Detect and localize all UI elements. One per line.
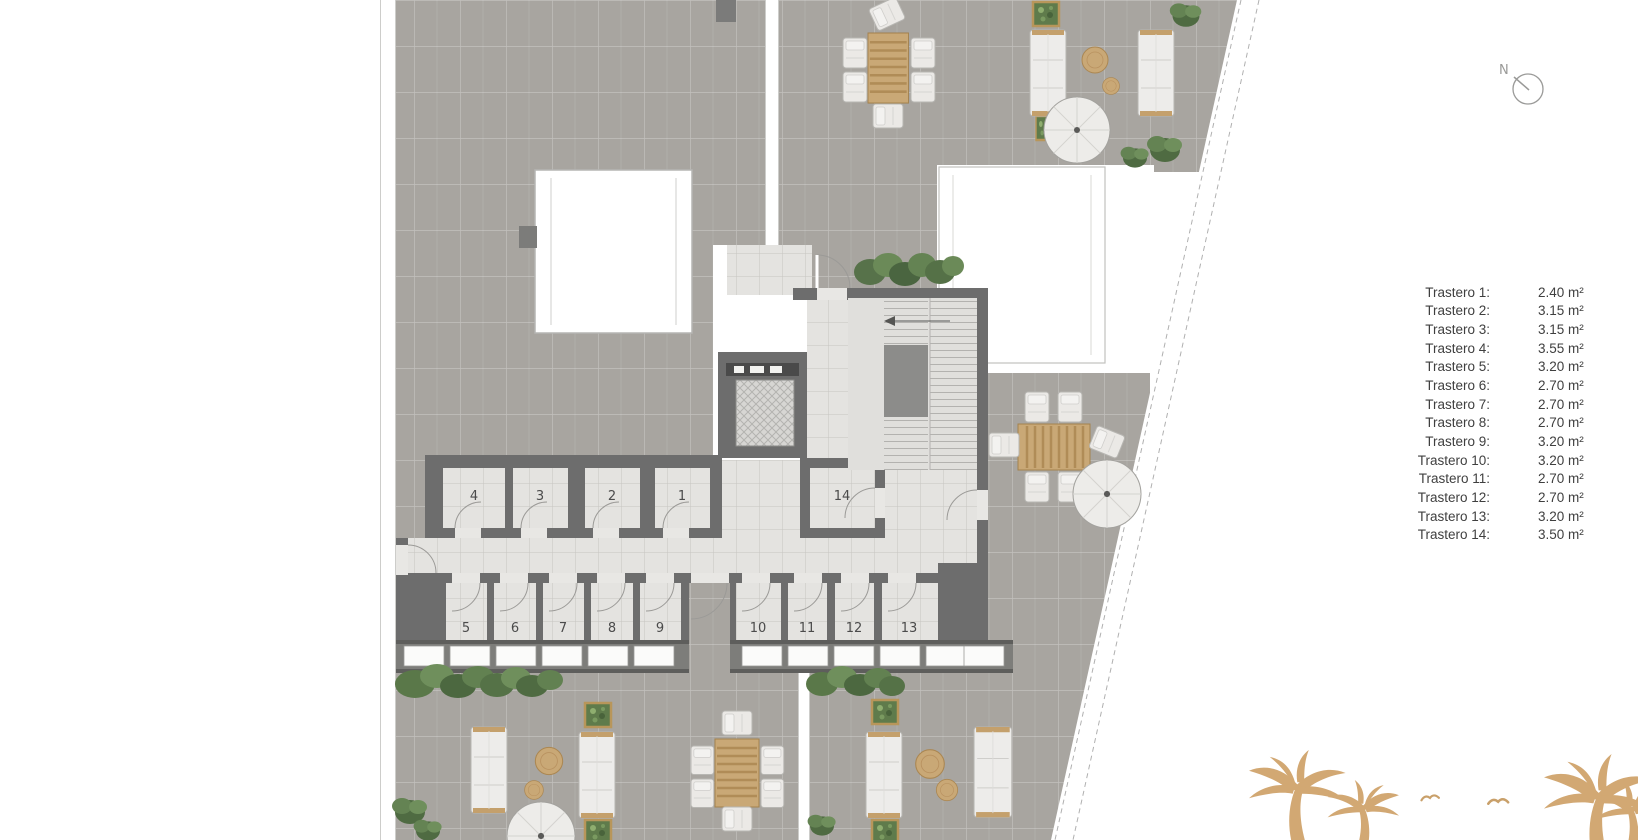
parasol — [1073, 460, 1141, 528]
legend-row: Trastero 13:3.20 m² — [1378, 507, 1584, 526]
legend-row: Trastero 1:2.40 m² — [1378, 283, 1584, 302]
side-table — [1082, 47, 1108, 73]
legend-value: 3.55 m² — [1538, 341, 1584, 356]
legend-value: 2.70 m² — [1538, 471, 1584, 486]
legend-value: 2.40 m² — [1538, 285, 1584, 300]
legend-label: Trastero 5: — [1378, 359, 1490, 374]
legend-value: 2.70 m² — [1538, 378, 1584, 393]
room-label-8: 8 — [608, 621, 616, 636]
legend-row: Trastero 8:2.70 m² — [1378, 413, 1584, 432]
legend-row: Trastero 9:3.20 m² — [1378, 432, 1584, 451]
parasol — [1044, 97, 1110, 163]
south-facade-windows — [396, 640, 1013, 673]
legend-value: 3.15 m² — [1538, 303, 1584, 318]
room-label-10: 10 — [750, 621, 767, 636]
legend-label: Trastero 13: — [1378, 509, 1490, 524]
sun-lounger — [866, 732, 902, 818]
legend-value: 3.20 m² — [1538, 509, 1584, 524]
legend-value: 3.20 m² — [1538, 434, 1584, 449]
legend-row: Trastero 6:2.70 m² — [1378, 376, 1584, 395]
sun-lounger — [1138, 30, 1174, 116]
legend-label: Trastero 9: — [1378, 434, 1490, 449]
legend-row: Trastero 7:2.70 m² — [1378, 395, 1584, 414]
legend-row: Trastero 5:3.20 m² — [1378, 358, 1584, 377]
room-label-9: 9 — [656, 621, 664, 636]
legend-label: Trastero 6: — [1378, 378, 1490, 393]
room-label-7: 7 — [559, 621, 567, 636]
skylight-bracket — [519, 226, 537, 248]
legend-row: Trastero 4:3.55 m² — [1378, 339, 1584, 358]
legend-row: Trastero 11:2.70 m² — [1378, 469, 1584, 488]
room-label-13: 13 — [901, 621, 918, 636]
room-label-2: 2 — [608, 489, 616, 504]
sun-lounger — [471, 727, 507, 813]
stair-landing — [884, 345, 928, 417]
legend-label: Trastero 3: — [1378, 322, 1490, 337]
legend-label: Trastero 8: — [1378, 415, 1490, 430]
legend-label: Trastero 12: — [1378, 490, 1490, 505]
legend-row: Trastero 3:3.15 m² — [1378, 320, 1584, 339]
legend-label: Trastero 7: — [1378, 397, 1490, 412]
legend-label: Trastero 11: — [1378, 471, 1490, 486]
sun-lounger — [579, 732, 615, 818]
legend-value: 3.15 m² — [1538, 322, 1584, 337]
side-table — [525, 781, 544, 800]
room-label-3: 3 — [536, 489, 544, 504]
room-label-12: 12 — [846, 621, 863, 636]
side-table — [936, 779, 957, 800]
side-table — [916, 750, 945, 779]
room-label-4: 4 — [470, 489, 478, 504]
legend-row: Trastero 2:3.15 m² — [1378, 302, 1584, 321]
side-table — [535, 747, 562, 774]
legend-label: Trastero 4: — [1378, 341, 1490, 356]
legend-row: Trastero 12:2.70 m² — [1378, 488, 1584, 507]
sun-lounger — [974, 727, 1012, 817]
elevator — [718, 352, 807, 458]
legend-label: Trastero 14: — [1378, 527, 1490, 542]
terrace-bottom-middle — [808, 673, 1093, 840]
room-label-11: 11 — [799, 621, 816, 636]
compass-north-label: N — [1499, 63, 1509, 78]
legend-row: Trastero 14:3.50 m² — [1378, 525, 1584, 544]
legend-label: Trastero 10: — [1378, 453, 1490, 468]
roof-element — [716, 0, 736, 22]
legend-value: 3.20 m² — [1538, 453, 1584, 468]
room-label-6: 6 — [511, 621, 519, 636]
legend-value: 3.50 m² — [1538, 527, 1584, 542]
legend-value: 2.70 m² — [1538, 490, 1584, 505]
stairwell — [848, 298, 977, 470]
room-label-14: 14 — [834, 489, 851, 504]
floor-plan-page: 4 3 2 1 14 5 6 7 8 9 10 11 12 13 — [0, 0, 1638, 840]
legend-row: Trastero 10:3.20 m² — [1378, 451, 1584, 470]
legend-label: Trastero 1: — [1378, 285, 1490, 300]
room-label-5: 5 — [462, 621, 470, 636]
legend-value: 2.70 m² — [1538, 415, 1584, 430]
room-label-1: 1 — [678, 489, 686, 504]
legend-label: Trastero 2: — [1378, 303, 1490, 318]
side-table — [1103, 78, 1120, 95]
legend-value: 3.20 m² — [1538, 359, 1584, 374]
skylight — [519, 170, 692, 333]
storage-area-legend: Trastero 1:2.40 m² Trastero 2:3.15 m² Tr… — [1378, 283, 1584, 544]
legend-value: 2.70 m² — [1538, 397, 1584, 412]
